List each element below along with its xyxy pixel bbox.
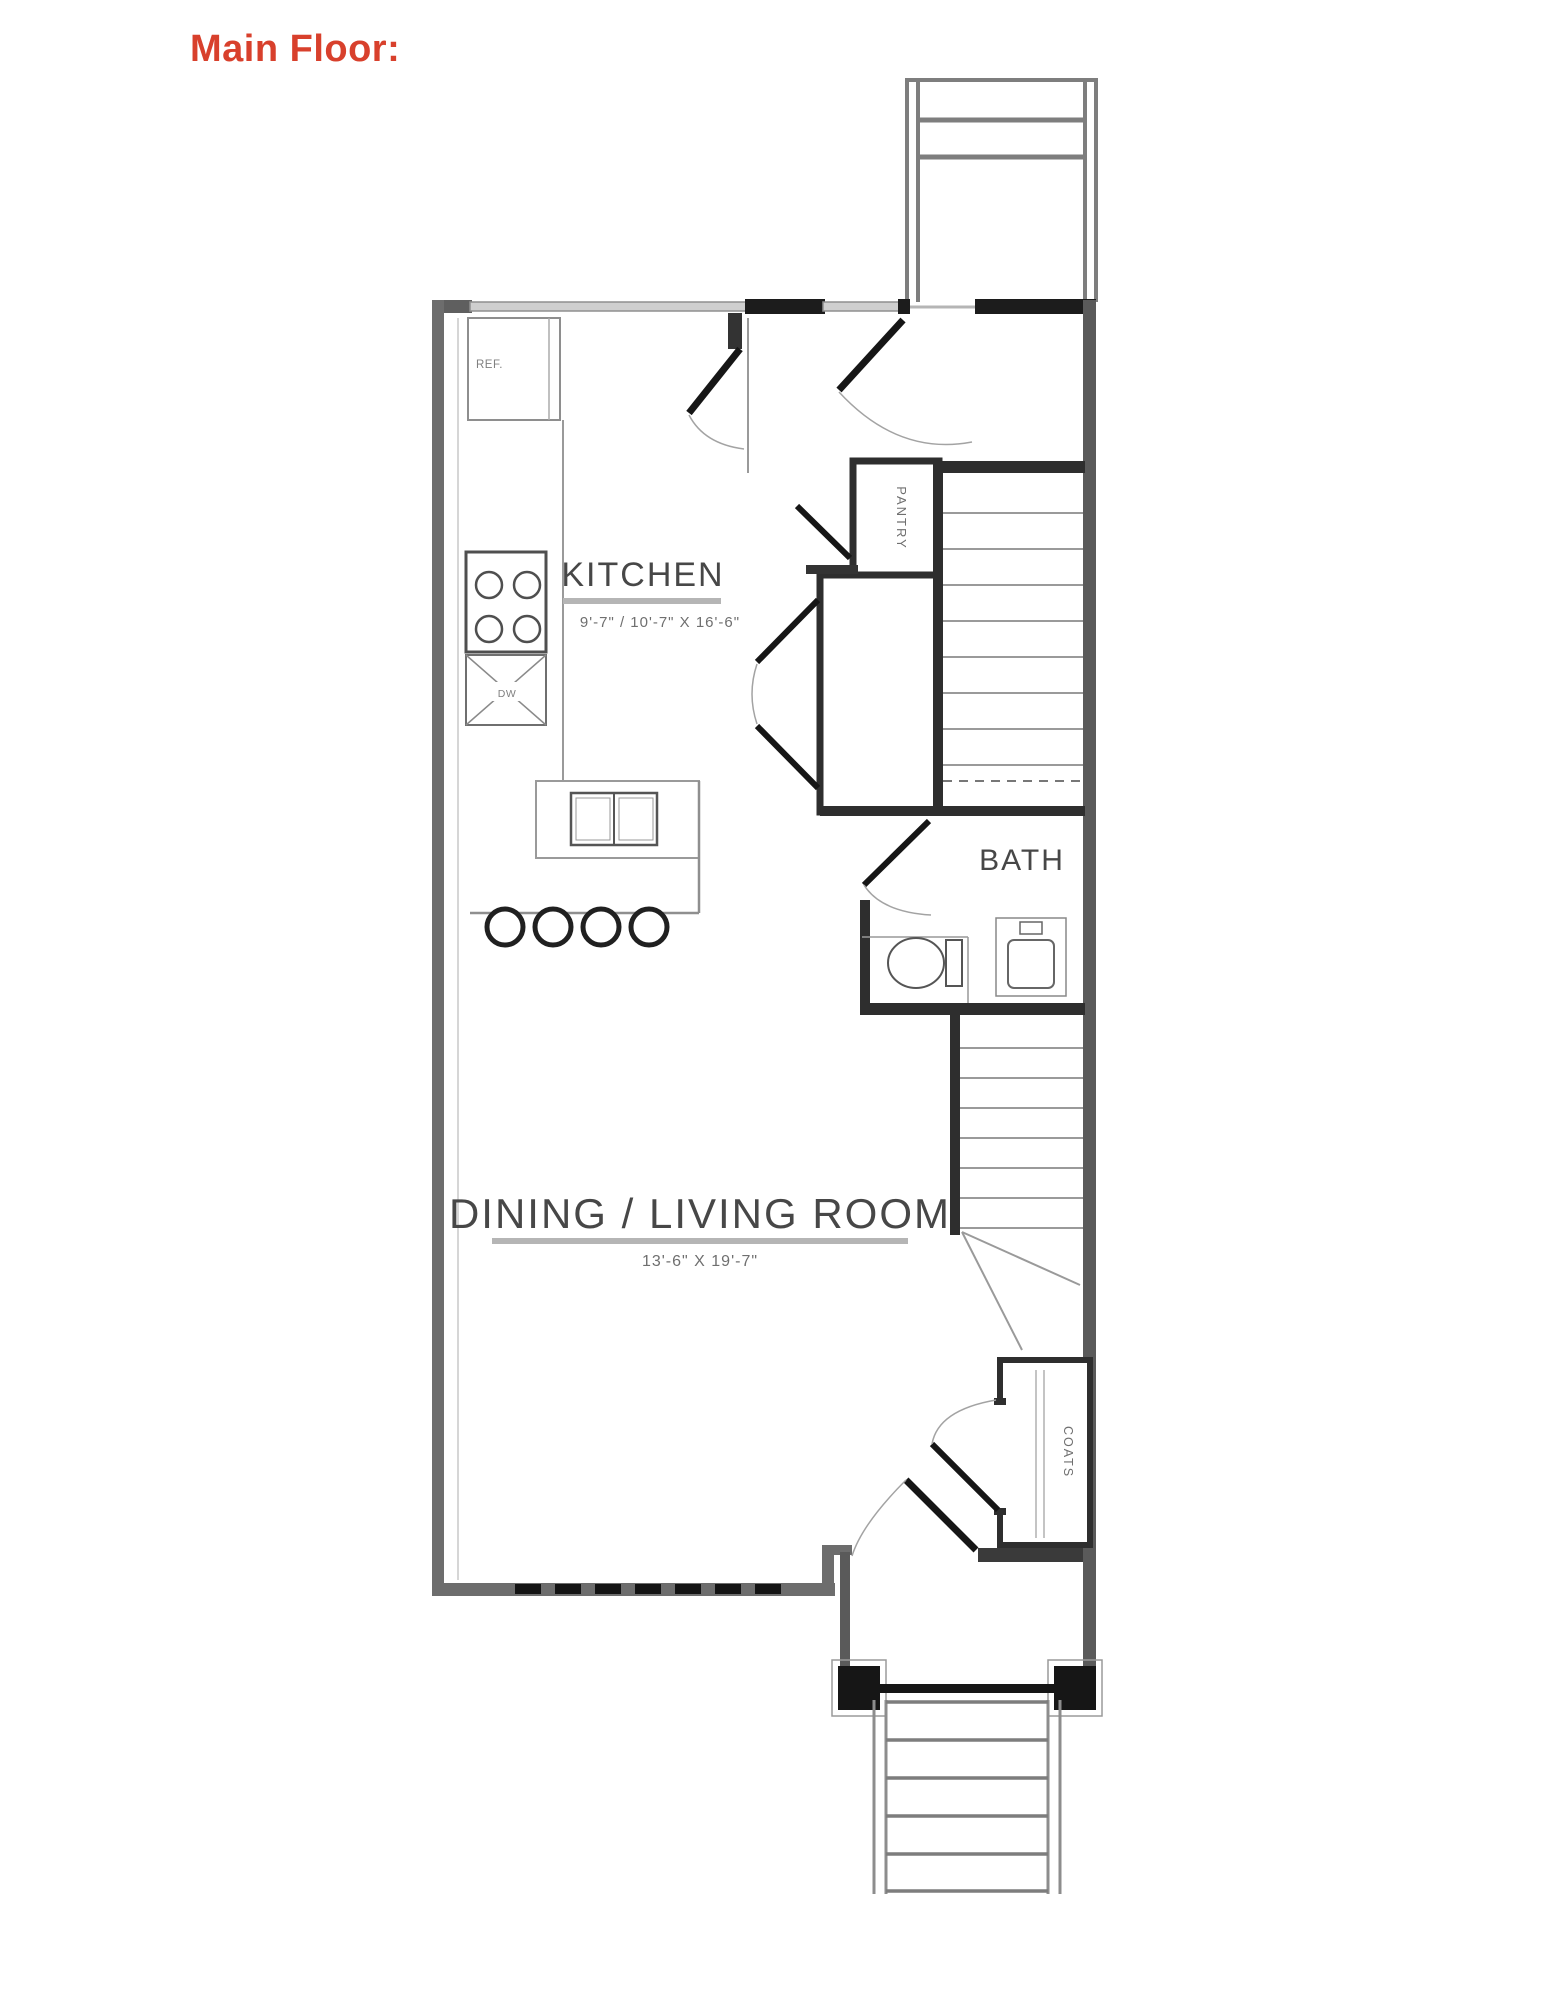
coats-door-leaf xyxy=(932,1444,998,1510)
toilet xyxy=(888,938,944,988)
porch-edge xyxy=(868,1684,1066,1693)
lower-staircase xyxy=(960,1048,1083,1350)
bath-door-leaf xyxy=(864,821,929,885)
pantry-label: PANTRY xyxy=(894,486,909,550)
upper-porch-stairs xyxy=(905,78,1098,302)
stair-wall xyxy=(933,461,943,812)
bath-left-wall xyxy=(860,900,870,1010)
lower-stair-wall xyxy=(950,1013,960,1235)
upper-staircase xyxy=(943,513,1083,781)
dining-living-label: DINING / LIVING ROOM xyxy=(449,1190,951,1237)
dining-living-dimensions: 13'-6" X 19'-7" xyxy=(642,1253,758,1270)
floor-plan-drawing: KITCHEN 9'-7" / 10'-7" X 16'-6" DINING /… xyxy=(0,0,1542,2000)
vestibule-wall xyxy=(978,1548,1083,1562)
door-swing-arc xyxy=(752,664,757,724)
stair-winder xyxy=(962,1232,1022,1350)
back-door-leaf xyxy=(839,320,903,390)
door-swing-arc xyxy=(864,885,931,915)
window-band xyxy=(470,302,747,311)
stair-winder xyxy=(962,1232,1080,1285)
closet-walls xyxy=(1000,1360,1090,1545)
kitchen-label: KITCHEN xyxy=(561,556,724,594)
bar-stool xyxy=(487,909,523,945)
bath-label: BATH xyxy=(979,844,1065,877)
wall-stub xyxy=(806,565,858,574)
interior-walls xyxy=(728,313,1085,1235)
bar-stool xyxy=(583,909,619,945)
bath-vanity xyxy=(996,918,1066,996)
bath-top-wall xyxy=(820,806,1085,816)
wall-segment xyxy=(975,299,1096,314)
kitchen-dimensions: 9'-7" / 10'-7" X 16'-6" xyxy=(580,614,740,631)
closet-door-opening xyxy=(995,1402,1005,1512)
coats-label: COATS xyxy=(1061,1426,1075,1478)
hall-closet xyxy=(820,575,939,812)
toilet-tank xyxy=(946,940,962,986)
doors xyxy=(689,320,998,1556)
door-swing-arc xyxy=(932,1400,996,1444)
front-porch xyxy=(832,1660,1102,1894)
floor-plan-page: Main Floor: xyxy=(0,0,1542,2000)
dishwasher-label: DW xyxy=(498,688,517,700)
window-band xyxy=(823,302,902,311)
bath-bottom-wall xyxy=(860,1003,1085,1015)
closet-door-leaf xyxy=(757,726,818,788)
closet-door-leaf xyxy=(757,600,818,662)
door-swing-arc xyxy=(852,1480,906,1556)
wall-stub xyxy=(728,313,742,349)
kitchen-fixtures xyxy=(466,318,699,945)
door-swing-arc xyxy=(689,415,744,449)
wall-left xyxy=(432,300,444,1596)
refrigerator-label: REF. xyxy=(476,359,503,371)
door-jamb xyxy=(994,1398,1006,1405)
front-door-leaf xyxy=(906,1480,976,1550)
label-underline xyxy=(492,1238,908,1244)
kitchen-hall-door-leaf xyxy=(689,349,740,413)
wall-segment xyxy=(745,299,825,314)
stair-top-wall xyxy=(933,461,1085,473)
label-underline xyxy=(563,598,721,604)
pantry-door-leaf xyxy=(797,506,850,558)
door-swing-arc xyxy=(839,392,972,445)
bar-stool xyxy=(631,909,667,945)
bar-stool xyxy=(535,909,571,945)
bath-fixtures xyxy=(862,918,1066,1003)
door-jamb xyxy=(898,299,910,314)
